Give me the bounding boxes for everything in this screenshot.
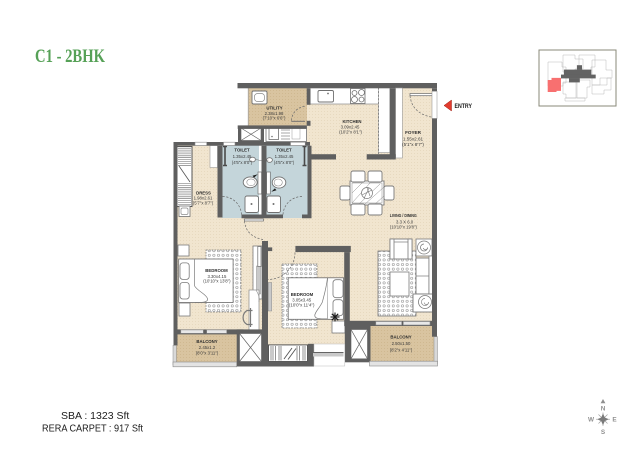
svg-text:(10'0"x 11'4"): (10'0"x 11'4") xyxy=(289,302,315,307)
svg-text:(4'5"x 8'0"): (4'5"x 8'0") xyxy=(232,160,253,165)
svg-text:TOILET: TOILET xyxy=(234,148,250,153)
svg-text:N: N xyxy=(601,406,606,413)
svg-text:(5'1"x 8'7"): (5'1"x 8'7") xyxy=(402,142,424,147)
svg-text:LIVING / DINING: LIVING / DINING xyxy=(390,213,417,218)
svg-text:ENTRY: ENTRY xyxy=(455,104,473,110)
svg-text:(8'0"x 3'11"): (8'0"x 3'11") xyxy=(196,351,219,356)
svg-text:BALCONY: BALCONY xyxy=(196,339,217,344)
svg-text:RERA CARPET : 917 Sft: RERA CARPET : 917 Sft xyxy=(42,423,143,435)
svg-text:S: S xyxy=(601,429,606,436)
svg-text:E: E xyxy=(612,417,617,424)
svg-text:C1 - 2BHK: C1 - 2BHK xyxy=(35,46,105,67)
svg-text:(7'10"x 6'6"): (7'10"x 6'6") xyxy=(263,115,286,120)
svg-text:2.45x1.2: 2.45x1.2 xyxy=(199,345,216,350)
svg-text:(8'2"x 4'11"): (8'2"x 4'11") xyxy=(390,347,413,352)
svg-text:UTILITY: UTILITY xyxy=(266,106,282,111)
svg-text:(5'7"x 8'7"): (5'7"x 8'7") xyxy=(193,201,214,206)
svg-text:(4'5"x 8'0"): (4'5"x 8'0") xyxy=(274,160,295,165)
svg-text:FOYER: FOYER xyxy=(405,130,422,135)
svg-text:SBA : 1323 Sft: SBA : 1323 Sft xyxy=(61,410,129,422)
svg-text:2.50x1.50: 2.50x1.50 xyxy=(392,341,411,346)
svg-text:1.35x2.45: 1.35x2.45 xyxy=(233,154,252,159)
svg-text:BEDROOM: BEDROOM xyxy=(291,292,314,297)
svg-text:KITCHEN: KITCHEN xyxy=(342,119,361,124)
svg-text:1.35x2.45: 1.35x2.45 xyxy=(275,154,294,159)
svg-text:BEDROOM: BEDROOM xyxy=(205,268,228,273)
svg-text:BALCONY: BALCONY xyxy=(390,335,411,340)
svg-text:1.55x2.61: 1.55x2.61 xyxy=(403,137,424,142)
svg-text:W: W xyxy=(588,417,595,424)
svg-text:(10'10"x 19'8"): (10'10"x 19'8") xyxy=(390,224,417,229)
svg-text:(10'2"x 8'1"): (10'2"x 8'1") xyxy=(339,130,362,135)
svg-text:(10'10"x 13'8"): (10'10"x 13'8") xyxy=(203,279,231,284)
svg-text:TOILET: TOILET xyxy=(276,148,292,153)
